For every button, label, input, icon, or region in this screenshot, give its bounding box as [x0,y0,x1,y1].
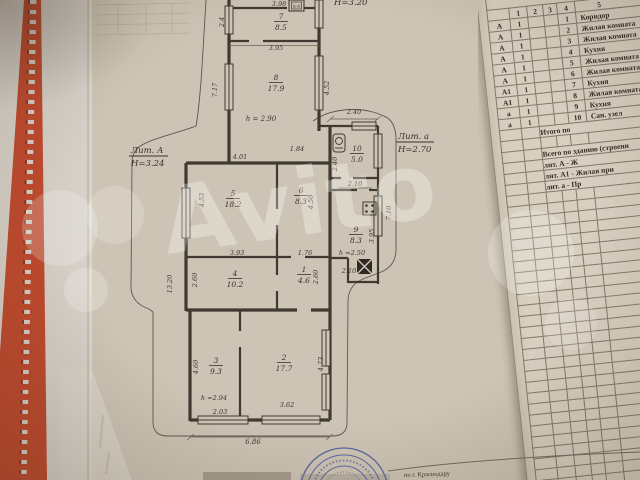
dim-label: 3.98 [272,0,286,8]
seal-stamp [300,448,388,480]
dim-label: 13.20 [166,275,174,294]
dim-label: 6.86 [245,438,261,446]
lit-small-text: Лит. а [397,132,429,142]
empty-cell [606,472,625,480]
room-area: 8.3 [295,197,307,206]
dim-label: 7.17 [211,82,219,97]
height-note: h =2.50 [339,249,365,257]
explication-page: 1 2 3 4 5 А 1 1 Коридор А 1 2 [476,0,640,480]
dim-label: 3.93 [230,249,244,257]
stove-icon [363,202,376,215]
room-area: 5.0 [351,155,363,164]
room-label: 4 10.2 [227,269,244,289]
height-note: h = 2.90 [246,115,277,123]
room-label: 5 18.2 [225,189,242,209]
room-label: 6 8.3 [294,186,308,206]
dim-label: 7.10 [385,206,393,220]
dim-label: 2.03 [212,408,227,416]
empty-cell [576,475,593,480]
walls [186,0,378,421]
room-num: 9 [354,225,359,234]
dimension-labels: 3.98 3.95 h = 2.90 2.40 4.01 1.84 2.10 h… [166,0,393,446]
lit-a1-height: Н=3.20 [333,0,368,8]
empty-cell [558,477,577,480]
folder-edge [0,0,132,480]
watermark-circle [86,186,144,244]
room-label: 3 9.3 [209,356,223,376]
room-label: 9 8.3 [349,225,363,245]
watermark-circle [22,190,98,266]
dim-label: 4.60 [192,360,200,375]
form-fragment [300,474,390,480]
lit-a-height: Н=3.24 [130,159,164,169]
dim-label: 4.52 [323,81,331,96]
dimension-lines [187,46,381,441]
room-num: 5 [231,189,236,198]
room-label: 8 17.9 [268,73,285,93]
room-num: 6 [299,186,304,195]
room-num: 7 [279,12,284,21]
section-mark: 8-8 [289,0,304,11]
dim-label: 2.40 [331,157,339,172]
room-num: 2 [281,353,287,362]
photo-corner-shadow [0,0,160,110]
empty-cell [592,474,607,480]
ghost-drawing [96,3,190,35]
dim-label: 1.76 [298,249,312,257]
dim-label: 2.60 [191,273,199,288]
lit-small-label: Лит. а Н=2.70 [396,132,434,155]
room-label: 7 8.5 [274,12,288,32]
form-fragment [203,472,291,480]
room-num: 1 [302,265,307,274]
dim-label: 4.01 [232,153,247,161]
dim-label: 4.50 [307,195,315,210]
windows [182,0,382,424]
section-mark-label: 8-8 [293,4,300,10]
plan-sheet [0,0,478,480]
boiler-icon [357,259,372,274]
watermark-circle [64,268,108,312]
dim-label: 2.10 [347,180,362,188]
dim-label: 3.62 [280,401,294,409]
height-note: h =2.94 [201,394,227,402]
dim-label: 2.60 [312,270,320,285]
explication-table: 1 2 3 4 5 А 1 1 Коридор А 1 2 [485,0,640,480]
toilet-icon [333,134,345,152]
room-label: 1 4.6 [297,265,311,285]
dim-label: 3.95 [269,44,283,52]
room-area: 9.3 [210,367,222,376]
room-label: 2 17.7 [276,353,293,373]
room-area: 8.3 [350,236,362,245]
room-area: 10.2 [227,280,244,289]
dim-label: 1.84 [290,145,304,153]
room-num: 10 [352,144,362,153]
stamp-city-text: по г. Краснодару [404,470,451,479]
document-photo: 1 2 3 4 5 А 1 1 Коридор А 1 2 [0,0,640,480]
room-num: 4 [232,269,238,278]
lit-a-label: Лит. А Н=3.24 [129,146,168,169]
dim-label: 4.53 [198,193,206,208]
room-num: 8 [274,73,279,82]
dim-label: 2.10 [341,267,356,275]
room-label: 10 5.0 [350,144,364,164]
room-area: 4.6 [297,276,310,285]
room-num: 3 [214,356,219,365]
lit-a-text: Лит. А [130,146,163,156]
room-area: 18.2 [225,200,242,209]
room-area: 17.7 [276,364,293,373]
parcel-boundary [131,0,396,436]
dim-label: 3.95 [368,229,376,243]
dim-label: 2.4 [218,17,226,28]
lit-small-height: Н=2.70 [397,145,432,155]
room-area: 17.9 [268,84,285,93]
avito-watermark: Avito [85,121,516,285]
room-area: 8.5 [275,23,287,32]
dim-label: 2.40 [346,108,361,116]
dim-label: 4.73 [317,357,325,372]
